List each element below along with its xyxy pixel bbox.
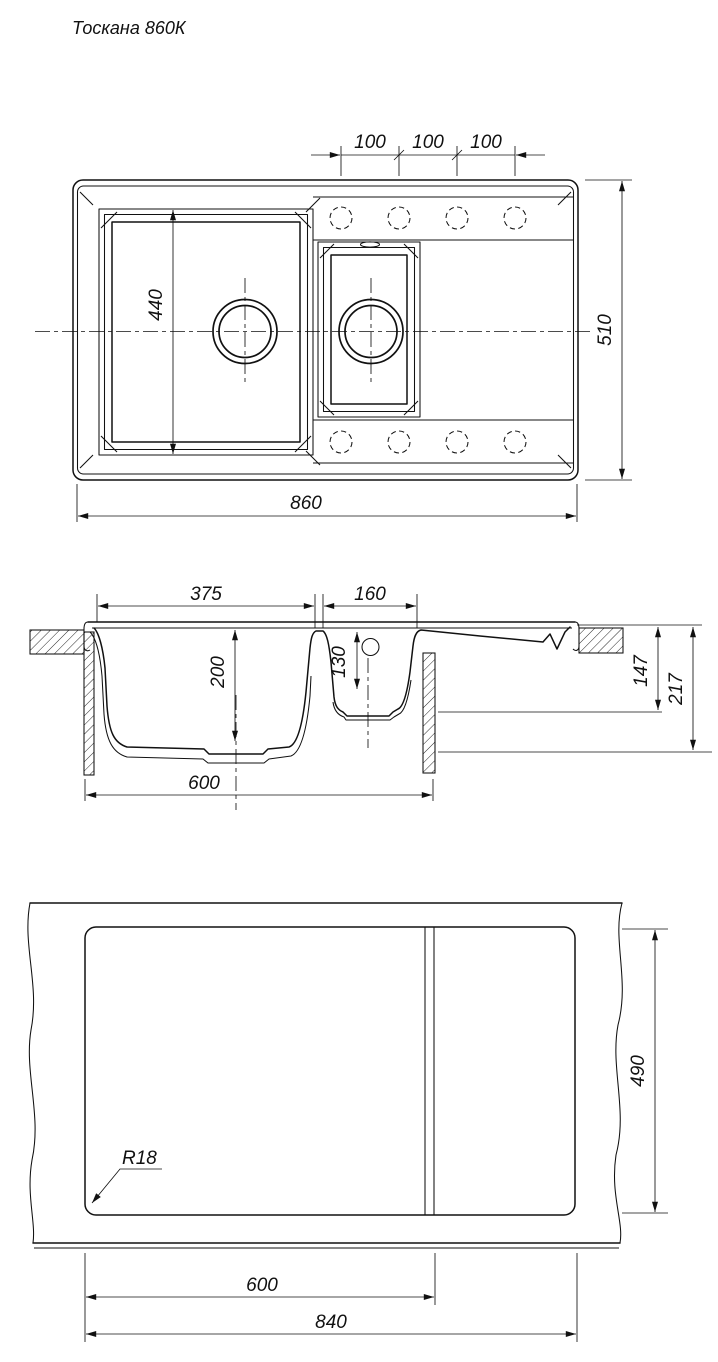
cutout-rect: [85, 927, 575, 1215]
dim-cabinet-width: 600: [85, 773, 433, 801]
cabinet-panel-left: [84, 632, 94, 775]
faucet-hole: [330, 207, 352, 229]
drawing-title: Тоскана 860К: [72, 18, 187, 38]
faucet-deck-top: [306, 197, 573, 240]
drawing-page: Тоскана 860К: [0, 0, 718, 1362]
overflow-hole-section: [362, 639, 379, 656]
dim-label-overall-width: 860: [290, 493, 322, 514]
rim-right-hook: [573, 622, 579, 650]
dim-label-rim-to-base: 147: [631, 654, 652, 687]
bowl-section-inner: [94, 627, 570, 754]
small-bowl-mid: [324, 248, 415, 412]
dim-divider-offset: 600: [85, 1253, 435, 1342]
dim-overall-width: 860: [77, 484, 577, 522]
dim-label-main-bowl-width: 375: [190, 584, 222, 605]
small-bowl-outer: [318, 242, 420, 417]
dim-label-bowl-length: 440: [146, 289, 167, 321]
slab-left-break-line: [28, 903, 35, 1243]
dim-label-overall-height: 217: [666, 672, 687, 706]
faucet-hole: [330, 431, 352, 453]
faucet-hole: [504, 207, 526, 229]
main-bowl: [99, 209, 313, 455]
countertop-right: [579, 628, 623, 653]
faucet-deck-bottom: [306, 420, 573, 465]
rim-corner-chamfers: [80, 192, 571, 468]
dim-label-cutout-depth: 490: [628, 1055, 649, 1087]
dim-label-hole-spacing-2: 100: [412, 132, 444, 153]
small-bowl-inner: [331, 255, 407, 404]
sink-rim-inner-edge: [78, 186, 574, 474]
faucet-hole: [446, 431, 468, 453]
faucet-hole: [504, 431, 526, 453]
countertop-left: [30, 630, 84, 654]
dim-label-corner-radius: R18: [122, 1148, 157, 1169]
main-bowl-outer: [99, 209, 313, 455]
dim-cutout-depth: 490: [622, 929, 668, 1213]
dim-label-divider-offset: 600: [246, 1275, 278, 1296]
small-bowl: [318, 242, 420, 417]
faucet-hole: [388, 207, 410, 229]
slab-right-break-line: [614, 903, 622, 1243]
dim-main-bowl-depth: 200: [208, 630, 235, 741]
height-reference-lines: [438, 712, 712, 752]
cutout-view: R18 490 600 840: [28, 903, 668, 1342]
main-bowl-corner-facets: [101, 212, 311, 452]
cabinet-panel-right: [423, 653, 435, 773]
cutout-divider-lines: [425, 927, 434, 1215]
section-view: 375 160 200 130 147 217: [30, 584, 712, 810]
bowl-section-outer: [90, 632, 311, 763]
dim-hole-spacings: 100 100 100: [311, 132, 545, 176]
dim-overall-depth: 510: [585, 180, 632, 480]
dim-corner-radius: R18: [92, 1148, 162, 1203]
sink-technical-drawing: Тоскана 860К: [0, 0, 718, 1362]
faucet-hole: [446, 207, 468, 229]
faucet-hole: [388, 431, 410, 453]
dim-label-cutout-width: 840: [315, 1312, 347, 1333]
dim-label-hole-spacing-3: 100: [470, 132, 502, 153]
dim-cutout-width: 840: [86, 1253, 577, 1342]
deck-top-edges: [306, 197, 573, 240]
dim-rim-to-base: 147: [631, 627, 658, 710]
worktop-slab: [28, 903, 622, 1248]
dim-label-small-bowl-width: 160: [354, 584, 386, 605]
sink-outer-edge: [73, 180, 578, 480]
dim-label-hole-spacing-1: 100: [354, 132, 386, 153]
dim-label-cabinet-width: 600: [188, 773, 220, 794]
overflow-slot: [361, 242, 380, 247]
top-view: 100 100 100 440 510 860: [35, 132, 632, 522]
dim-label-main-bowl-depth: 200: [208, 656, 229, 689]
dim-label-small-bowl-depth: 130: [329, 646, 350, 678]
deck-bottom-edges: [306, 420, 573, 465]
dim-bowl-length: 440: [146, 210, 173, 454]
dim-label-overall-depth: 510: [595, 314, 616, 346]
dim-overall-height: 217: [666, 627, 693, 750]
sink-section-profile: [84, 622, 579, 763]
